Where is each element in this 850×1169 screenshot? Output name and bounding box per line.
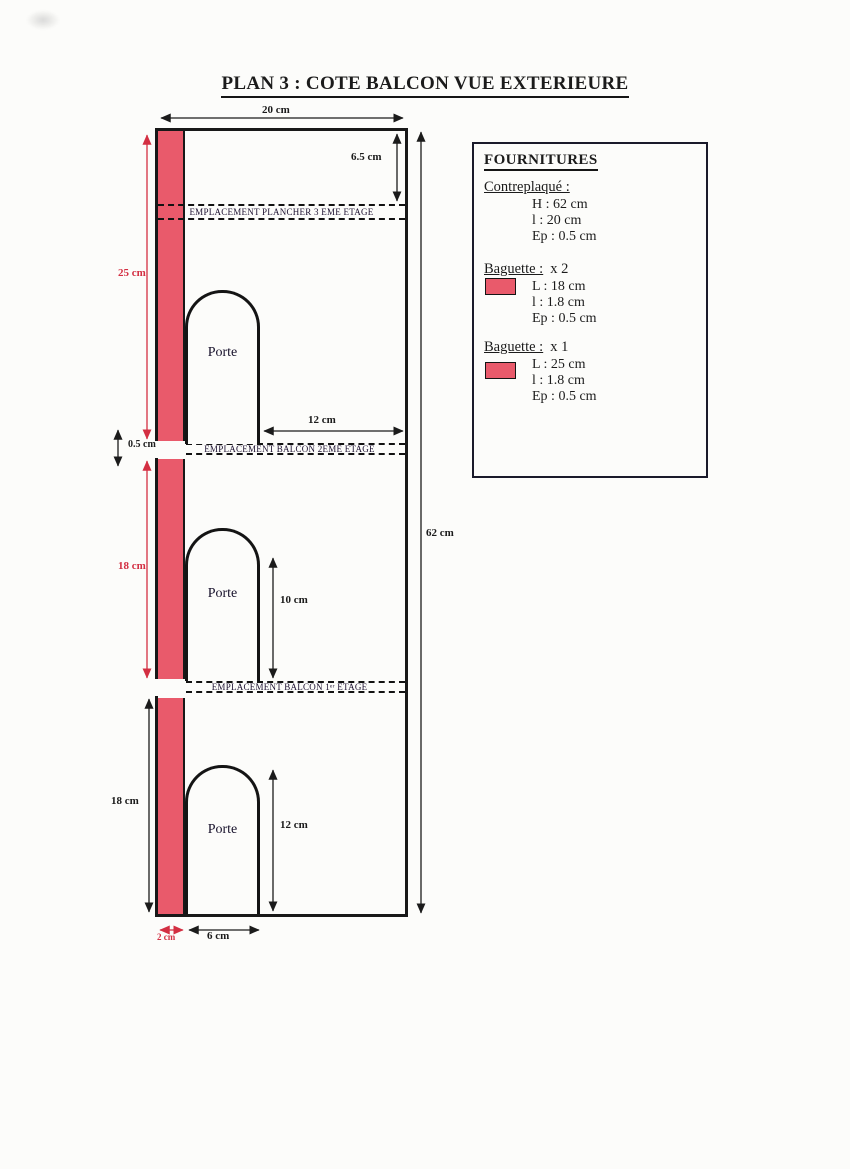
fournitures-box: FOURNITURES Contreplaqué : H : 62 cm l :… [472,142,708,478]
baguette-x1-color-swatch [485,362,516,379]
section-baguette-x2-heading: Baguette :x 2 [484,261,568,278]
baguette-x1-length: L : 25 cm [532,357,586,373]
dim-door-width: 6 cm [207,930,229,942]
band-balcon-1er-label: EMPLACEMENT BALCON 1ᵉʳ ETAGE [212,682,368,692]
page-title-text: PLAN 3 : COTE BALCON VUE EXTERIEURE [221,73,628,98]
band-plancher-3eme-label: EMPLACEMENT PLANCHER 3 EME ETAGE [189,207,373,217]
contreplaque-thickness: Ep : 0.5 cm [532,229,597,245]
door-2eme-etage: Porte [185,528,260,681]
fournitures-title: FOURNITURES [484,152,598,169]
dim-left-mid-baguette: 18 cm [118,560,146,572]
door-label: Porte [188,345,257,361]
dim-left-bottom-section: 18 cm [111,795,139,807]
band-balcon-2eme: EMPLACEMENT BALCON 2EME ETAGE [186,443,405,455]
page-title: PLAN 3 : COTE BALCON VUE EXTERIEURE [0,73,850,95]
balcony-slot-notch-2eme [152,441,186,458]
band-balcon-2eme-label: EMPLACEMENT BALCON 2EME ETAGE [204,444,375,454]
baguette-x1-width: l : 1.8 cm [532,373,585,389]
baguette-strip-top-segment [158,131,185,441]
baguette-x2-color-swatch [485,278,516,295]
door-label: Porte [188,822,257,838]
baguette-strip-bottom-segment [158,698,185,914]
dim-plancher-offset: 6.5 cm [351,151,382,163]
door-3eme-etage: Porte [185,290,260,444]
dim-left-top-baguette: 25 cm [118,267,146,279]
band-plancher-3eme: EMPLACEMENT PLANCHER 3 EME ETAGE [158,204,405,220]
dim-door3-height: 12 cm [280,819,308,831]
section-baguette-x1-heading: Baguette :x 1 [484,339,568,356]
dim-door1-to-wall: 12 cm [308,414,336,426]
contreplaque-width: l : 20 cm [532,213,581,229]
baguette-strip-middle-segment [158,459,185,681]
dim-door2-height: 10 cm [280,594,308,606]
baguette-x2-length: L : 18 cm [532,279,586,295]
baguette-x1-thickness: Ep : 0.5 cm [532,389,597,405]
balcony-slot-notch-1er [152,679,186,696]
baguette-x2-thickness: Ep : 0.5 cm [532,311,597,327]
dim-total-height: 62 cm [426,527,454,539]
door-1er-etage: Porte [185,765,260,914]
section-contreplaque-heading: Contreplaqué : [484,179,577,196]
dimension-arrows-layer [0,0,850,1169]
dim-baguette-width: 2 cm [157,932,175,942]
door-label: Porte [188,586,257,602]
band-balcon-1er: EMPLACEMENT BALCON 1ᵉʳ ETAGE [186,681,405,693]
scan-artifact [26,10,60,30]
scanned-plan-page: PLAN 3 : COTE BALCON VUE EXTERIEURE EMPL… [0,0,850,1169]
baguette-x2-width: l : 1.8 cm [532,295,585,311]
dim-top-width: 20 cm [262,104,290,116]
dim-balcony-thickness: 0.5 cm [128,439,156,450]
contreplaque-height: H : 62 cm [532,197,588,213]
